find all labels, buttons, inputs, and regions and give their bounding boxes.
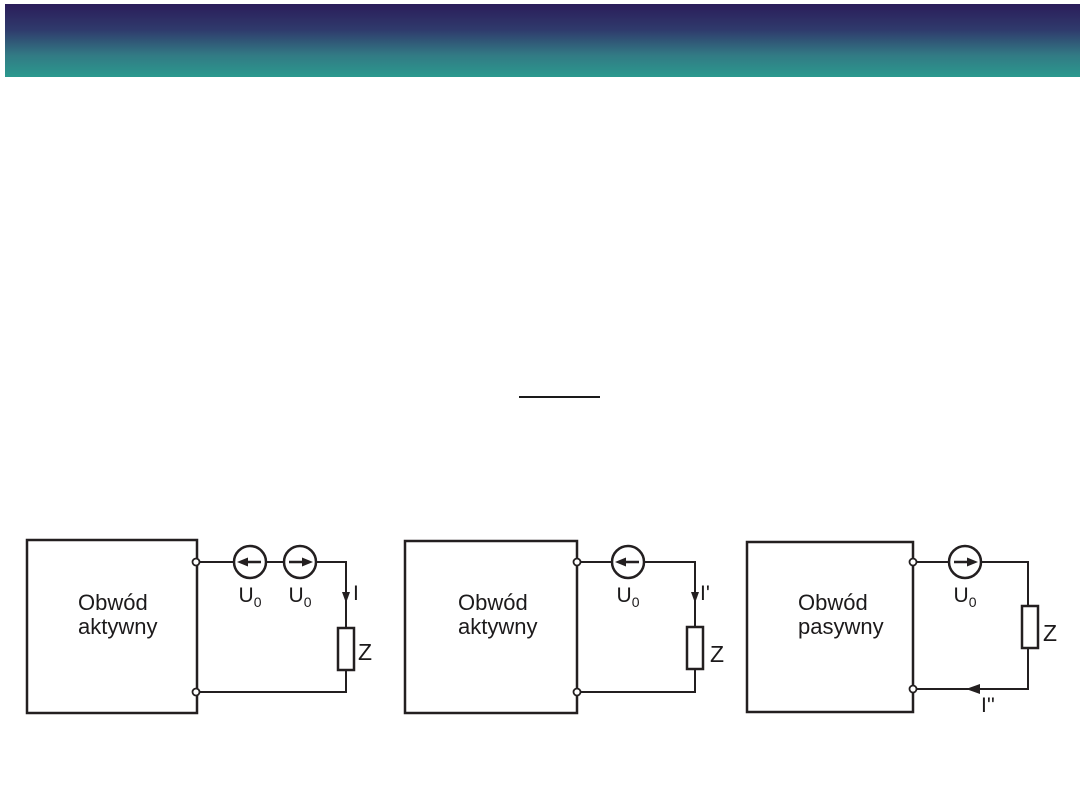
- circuit-box-label-line2: pasywny: [798, 614, 884, 639]
- voltage-source-label: U0: [239, 584, 262, 610]
- voltage-source-label: U0: [617, 584, 640, 610]
- terminal-node-top: [193, 559, 200, 566]
- wire: [644, 562, 695, 627]
- circuit-diagram-1: Obwód aktywny U0 U0 I Z: [25, 538, 385, 723]
- circuit-box-label-line1: Obwód: [78, 590, 148, 615]
- impedance-rect: [1022, 606, 1038, 648]
- impedance-rect: [687, 627, 703, 669]
- wire: [981, 562, 1028, 606]
- voltage-source-label: U0: [954, 584, 977, 610]
- circuit-diagram-3: Obwód pasywny U0 Z I'': [745, 538, 1080, 728]
- circuit-box-label-line1: Obwód: [458, 590, 528, 615]
- circuit-box-label-line1: Obwód: [798, 590, 868, 615]
- current-label: I': [700, 582, 710, 605]
- wire: [316, 562, 346, 628]
- terminal-node-bottom: [193, 689, 200, 696]
- impedance-label: Z: [358, 639, 372, 665]
- wire: [916, 648, 1028, 689]
- wire: [199, 670, 346, 692]
- circuit-diagram-2: Obwód aktywny U0 I' Z: [403, 538, 738, 723]
- impedance-label: Z: [710, 641, 724, 667]
- impedance-label: Z: [1043, 620, 1057, 646]
- circuit-box-label-line2: aktywny: [458, 614, 537, 639]
- circuit-box-label-line2: aktywny: [78, 614, 157, 639]
- current-label: I: [353, 582, 359, 605]
- terminal-node-top: [910, 559, 917, 566]
- slide-canvas: Obwód aktywny U0 U0 I Z Obwód aktywny: [0, 0, 1080, 810]
- impedance-rect: [338, 628, 354, 670]
- current-label: I'': [981, 694, 995, 717]
- header-banner: [5, 4, 1080, 77]
- voltage-source-label: U0: [289, 584, 312, 610]
- current-arrow-down-icon: [342, 592, 350, 603]
- terminal-node-top: [574, 559, 581, 566]
- terminal-node-bottom: [574, 689, 581, 696]
- equation-fraction-bar: [519, 396, 600, 398]
- wire: [580, 669, 695, 692]
- current-arrow-down-icon: [691, 592, 699, 603]
- terminal-node-bottom: [910, 686, 917, 693]
- current-arrow-left-icon: [966, 684, 980, 694]
